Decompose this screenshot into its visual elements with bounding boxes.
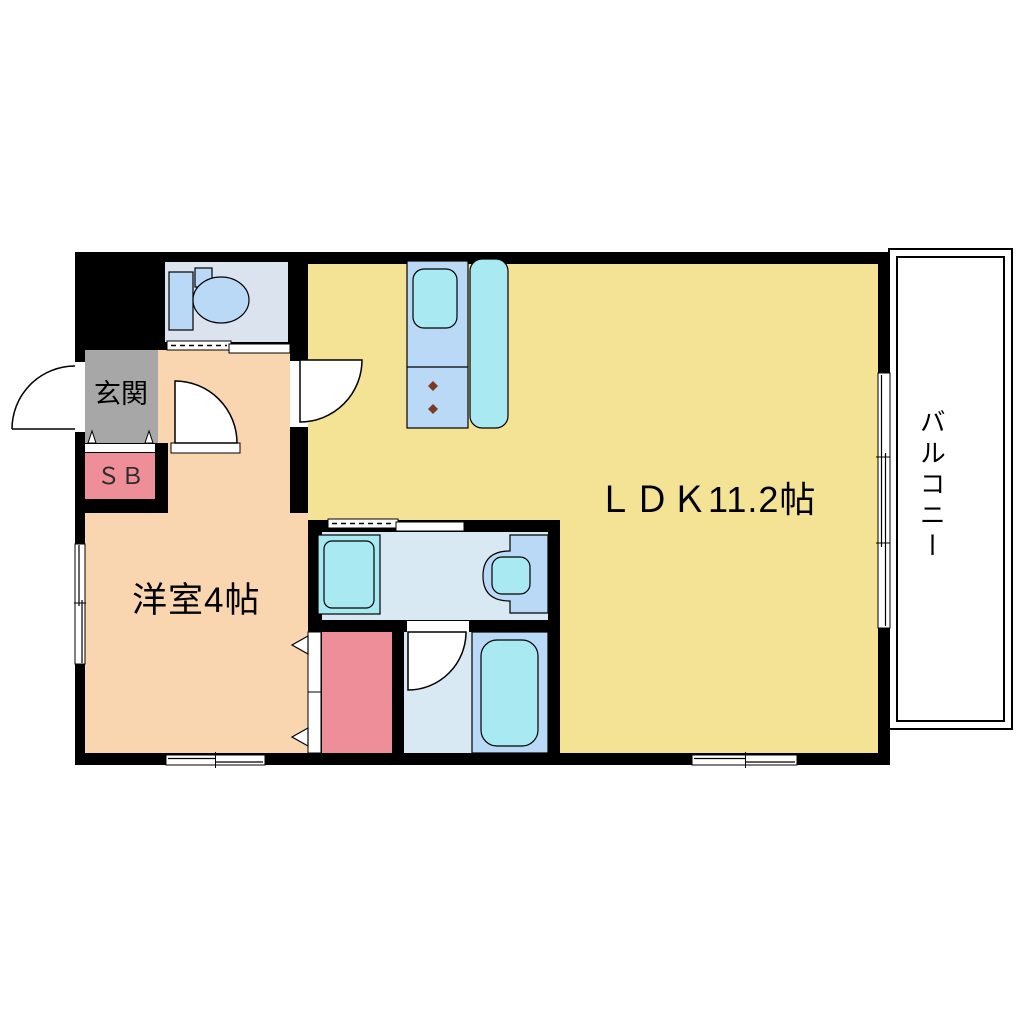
balcony-label: バルコニー: [917, 408, 944, 563]
kitchen-counter-sink-icon: [407, 261, 468, 428]
washing-machine-icon: [318, 535, 380, 614]
linework-layer: [0, 0, 1020, 1020]
western-room-label: 洋室4帖: [132, 583, 260, 620]
bathtub-icon: [472, 632, 548, 753]
balcony-sliding-door: [876, 373, 890, 628]
refrigerator-icon: [470, 259, 508, 428]
floor-plan: 玄関 ＳＢ 洋室4帖 ＬＤＫ11.2帖 バルコニー: [0, 0, 1020, 1020]
west-side-window: [74, 544, 86, 664]
ldk-label: ＬＤＫ11.2帖: [597, 481, 816, 519]
entrance-label: 玄関: [94, 380, 148, 408]
shoe-box-label: ＳＢ: [97, 464, 145, 488]
washroom-door: [328, 519, 464, 531]
entrance-door: [12, 362, 85, 432]
closet-folding-door: [292, 632, 321, 753]
wash-basin-icon: [483, 535, 548, 613]
ldk-door: [290, 360, 362, 427]
west-bottom-window: [166, 752, 265, 768]
entrance-step-markers: [88, 431, 153, 443]
western-room-door: [171, 381, 240, 453]
bathroom-door: [407, 621, 469, 690]
ldk-bottom-window: [692, 752, 797, 768]
toilet-door: [167, 341, 290, 353]
toilet-icon: [169, 268, 249, 330]
